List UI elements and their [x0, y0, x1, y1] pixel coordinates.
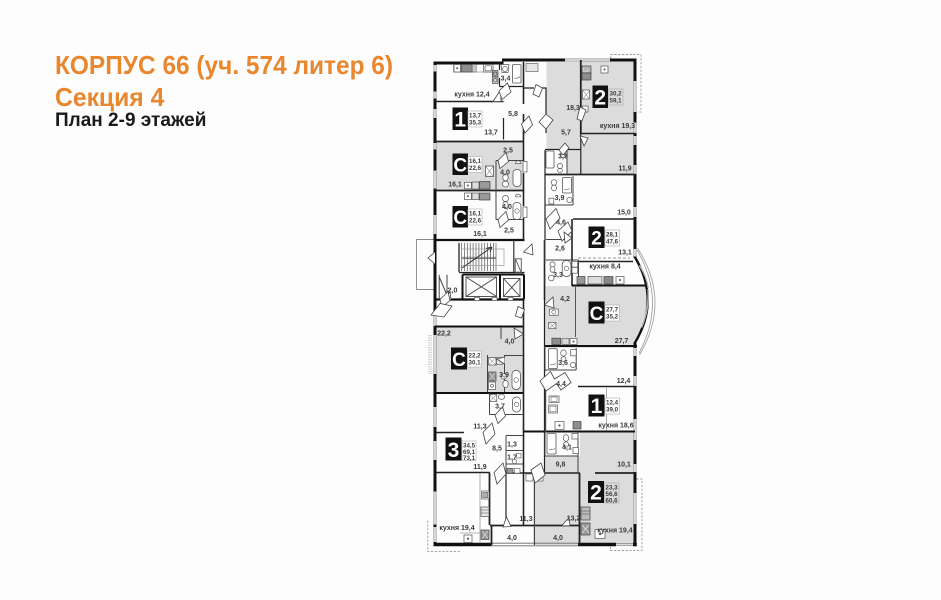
svg-text:2: 2 — [594, 87, 606, 110]
svg-text:27,7: 27,7 — [606, 307, 619, 314]
svg-text:3,3: 3,3 — [553, 272, 563, 279]
svg-text:27,7: 27,7 — [615, 338, 629, 345]
svg-text:59,1: 59,1 — [610, 98, 623, 105]
svg-text:4,0: 4,0 — [502, 204, 512, 211]
svg-text:2,5: 2,5 — [503, 148, 513, 155]
svg-text:1: 1 — [591, 395, 603, 418]
svg-text:кухня 19,3: кухня 19,3 — [600, 123, 635, 130]
svg-text:кухня 18,6: кухня 18,6 — [598, 423, 633, 430]
svg-text:2,6: 2,6 — [555, 246, 565, 253]
svg-text:3: 3 — [448, 439, 460, 462]
svg-text:4,0: 4,0 — [500, 170, 510, 177]
svg-text:22,2: 22,2 — [437, 331, 451, 338]
svg-text:16,1: 16,1 — [448, 182, 462, 189]
svg-text:60,6: 60,6 — [606, 498, 619, 505]
svg-text:3,4: 3,4 — [501, 76, 511, 83]
svg-text:кухня 12,4: кухня 12,4 — [454, 92, 489, 99]
svg-text:4,0: 4,0 — [507, 535, 517, 542]
svg-text:16,1: 16,1 — [469, 211, 482, 218]
svg-text:1: 1 — [454, 109, 466, 132]
svg-text:3,9: 3,9 — [555, 195, 565, 202]
svg-text:22,2: 22,2 — [469, 353, 482, 360]
svg-text:13,2: 13,2 — [567, 516, 581, 523]
svg-text:30,1: 30,1 — [469, 360, 482, 367]
svg-text:3,9: 3,9 — [558, 154, 568, 161]
svg-text:3,7: 3,7 — [495, 404, 505, 411]
svg-text:кухня 8,4: кухня 8,4 — [589, 264, 620, 271]
svg-text:73,1: 73,1 — [463, 455, 476, 462]
svg-text:47,6: 47,6 — [606, 239, 619, 246]
svg-text:30,2: 30,2 — [610, 91, 623, 98]
svg-text:2,0: 2,0 — [448, 288, 458, 295]
svg-text:3,6: 3,6 — [558, 360, 568, 367]
svg-text:13,1: 13,1 — [618, 250, 632, 257]
svg-text:35,3: 35,3 — [469, 120, 482, 127]
svg-text:9,8: 9,8 — [556, 462, 566, 469]
svg-text:2: 2 — [590, 482, 602, 505]
svg-text:16,1: 16,1 — [473, 231, 487, 238]
svg-text:1,7: 1,7 — [507, 455, 517, 462]
svg-text:39,0: 39,0 — [606, 407, 619, 414]
svg-text:С: С — [452, 350, 466, 371]
svg-text:4,2: 4,2 — [560, 296, 570, 303]
svg-text:22,6: 22,6 — [469, 165, 482, 172]
svg-text:1,3: 1,3 — [507, 442, 517, 449]
svg-text:4,1: 4,1 — [562, 445, 572, 452]
svg-text:13,7: 13,7 — [469, 113, 482, 120]
svg-text:кухня 19,4: кухня 19,4 — [597, 528, 632, 535]
svg-text:С: С — [453, 156, 467, 177]
svg-text:4,0: 4,0 — [505, 339, 515, 346]
svg-text:35,2: 35,2 — [606, 314, 619, 321]
svg-text:11,9: 11,9 — [618, 166, 631, 173]
svg-text:11,3: 11,3 — [519, 516, 532, 523]
svg-text:С: С — [453, 208, 467, 229]
svg-text:13,7: 13,7 — [484, 130, 498, 137]
svg-text:11,3: 11,3 — [473, 424, 486, 431]
svg-text:15,0: 15,0 — [617, 210, 631, 217]
svg-text:16,1: 16,1 — [469, 158, 482, 165]
svg-text:3,9: 3,9 — [499, 372, 509, 379]
svg-text:18,3: 18,3 — [566, 105, 580, 112]
svg-text:кухня 19,4: кухня 19,4 — [439, 525, 474, 532]
svg-text:11,9: 11,9 — [473, 464, 486, 471]
svg-text:12,4: 12,4 — [617, 378, 631, 385]
svg-text:2: 2 — [591, 229, 602, 250]
svg-text:4,6: 4,6 — [556, 220, 566, 227]
svg-text:5,8: 5,8 — [508, 111, 518, 118]
svg-text:8,5: 8,5 — [492, 446, 502, 453]
svg-text:10,1: 10,1 — [617, 462, 631, 469]
svg-text:С: С — [590, 304, 604, 325]
svg-text:4,4: 4,4 — [556, 381, 566, 388]
svg-text:5,7: 5,7 — [561, 130, 571, 137]
svg-text:2,5: 2,5 — [504, 228, 514, 235]
svg-text:22,6: 22,6 — [469, 218, 482, 225]
svg-text:28,1: 28,1 — [606, 232, 619, 239]
svg-text:4,0: 4,0 — [553, 535, 563, 542]
svg-text:12,4: 12,4 — [606, 400, 619, 407]
